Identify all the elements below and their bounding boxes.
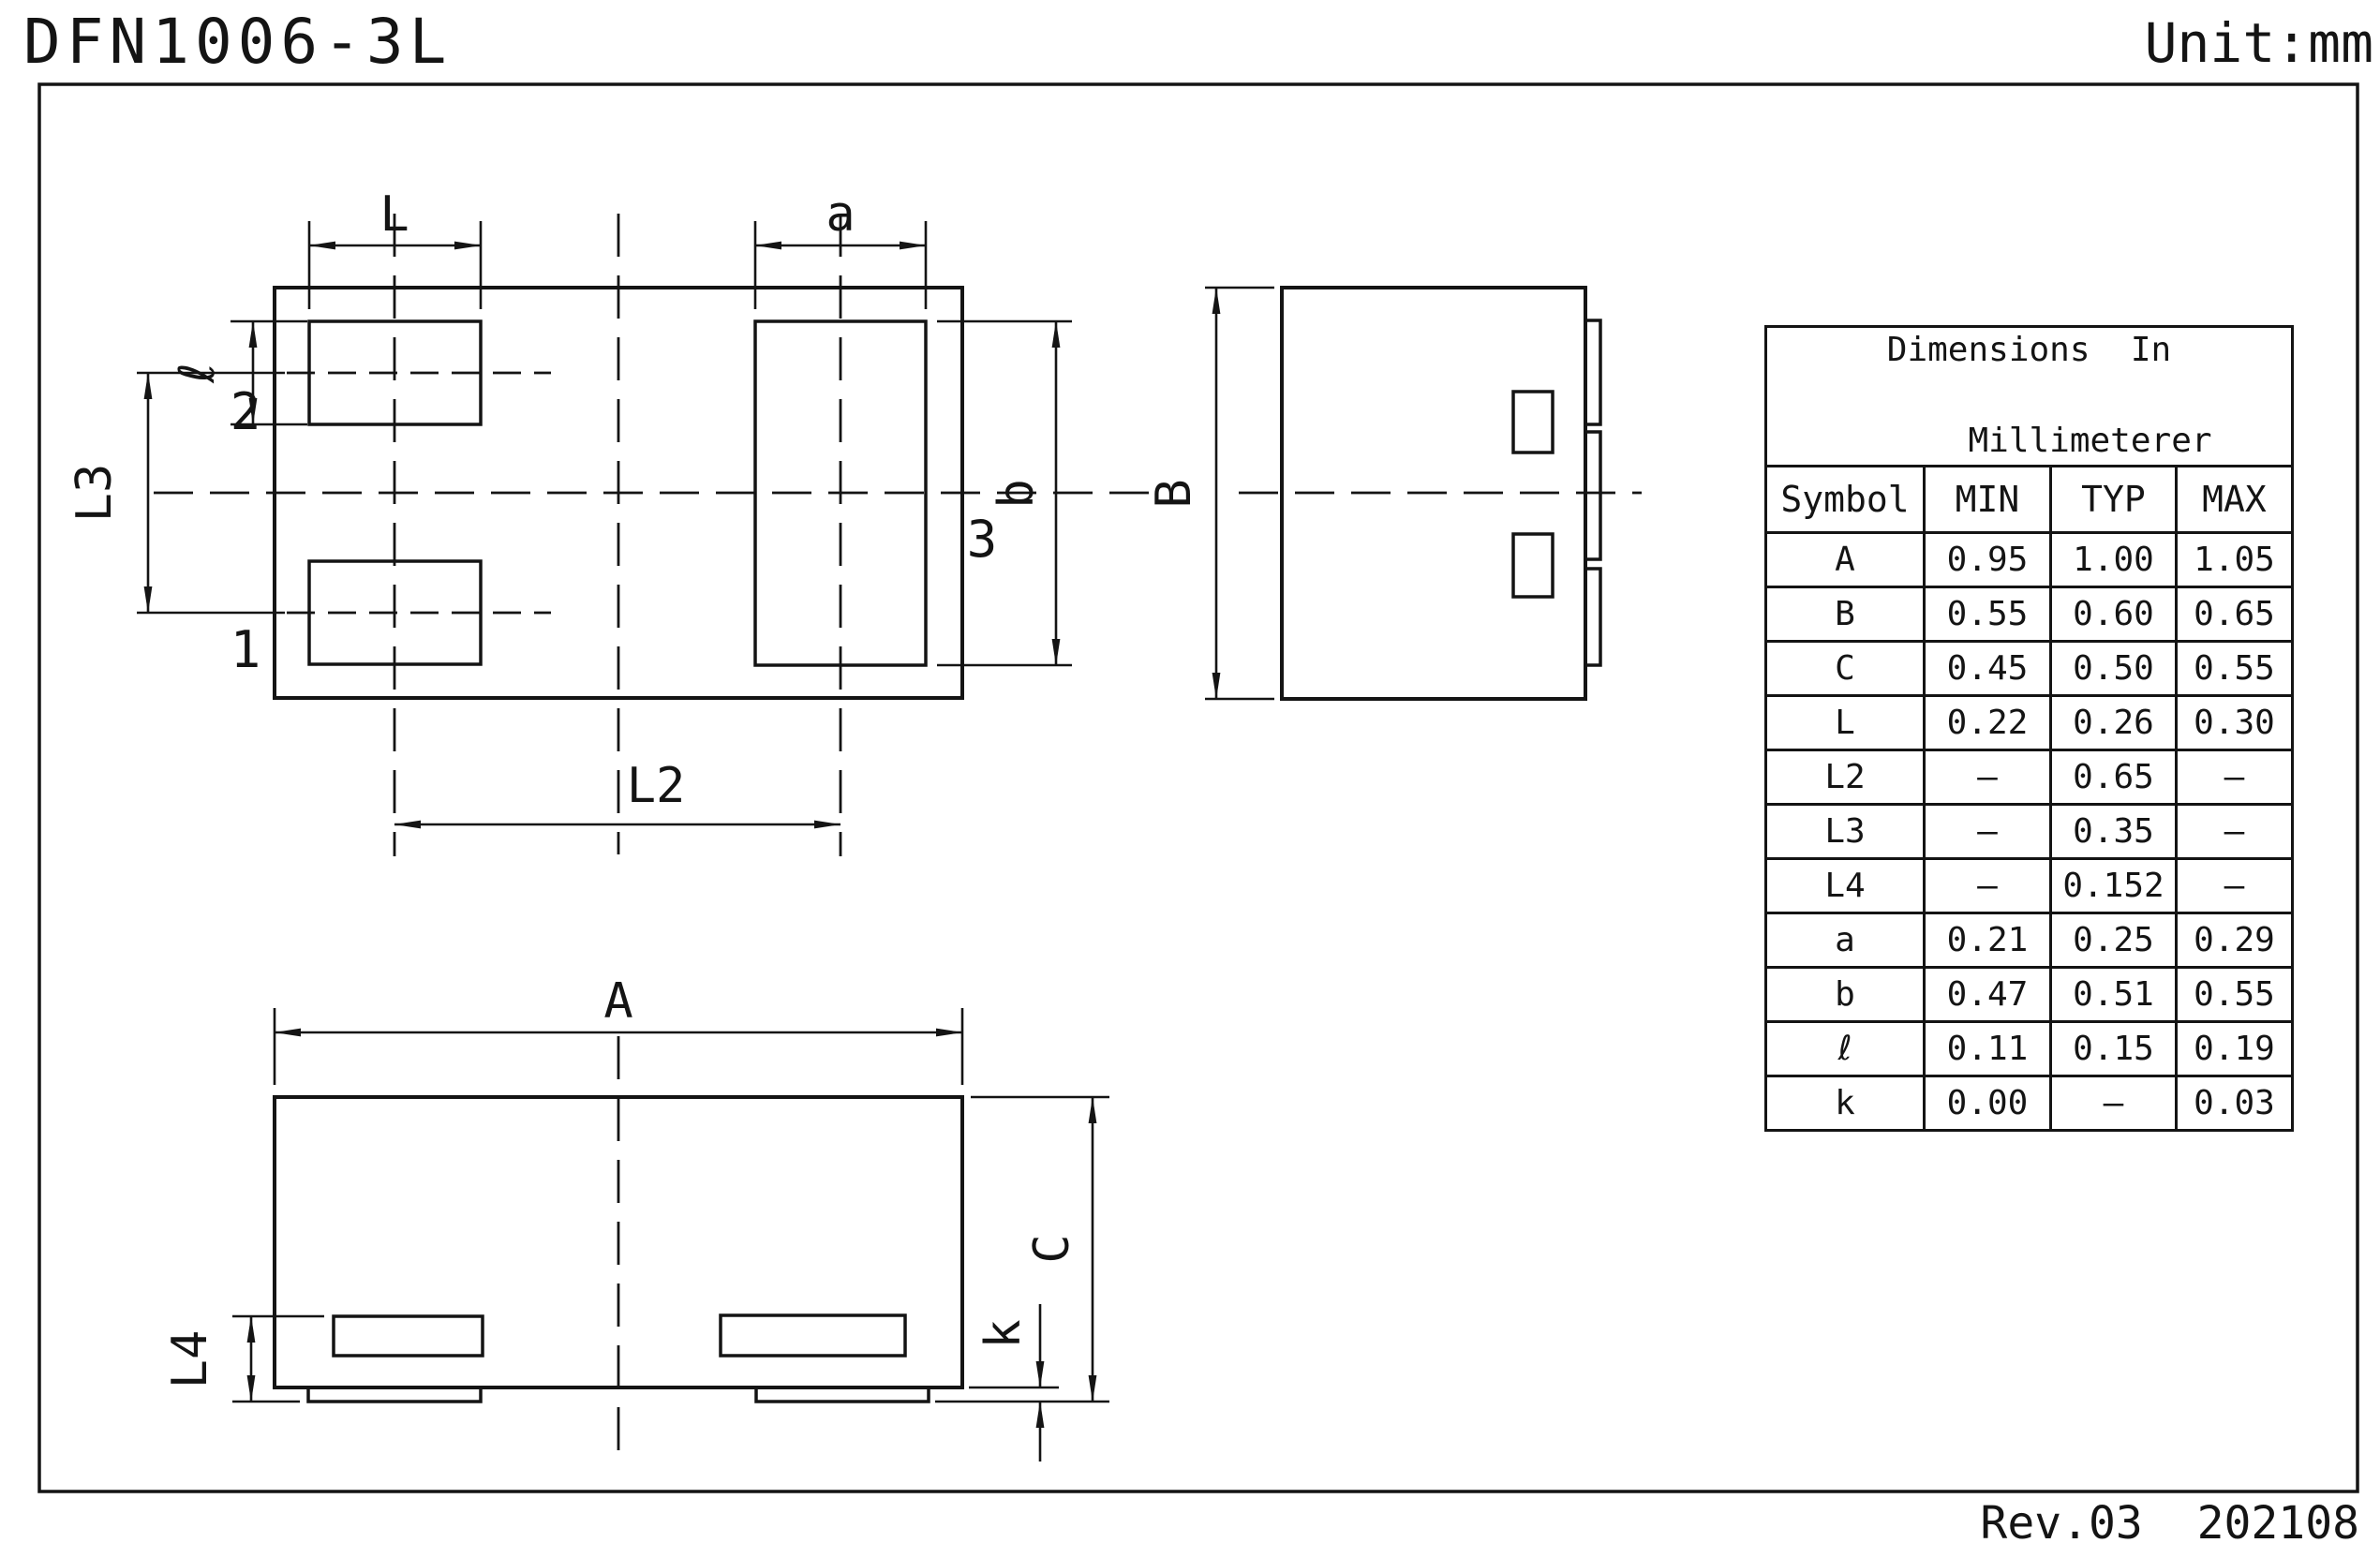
- cell-min: 0.00: [1925, 1076, 2051, 1130]
- cell-min: –: [1925, 804, 2051, 858]
- lead-tab-middle: [1585, 432, 1600, 559]
- cell-min: 0.22: [1925, 695, 2051, 749]
- cell-symbol: b: [1766, 967, 1925, 1021]
- table-row: a 0.21 0.25 0.29: [1766, 913, 2293, 967]
- cell-min: 0.55: [1925, 586, 2051, 641]
- dimensions-table: Dimensions In Millimeterer Symbol MIN TY…: [1764, 325, 2294, 1132]
- pin-2-label: 2: [231, 382, 261, 441]
- cell-max: 0.03: [2177, 1076, 2293, 1130]
- cell-max: 1.05: [2177, 532, 2293, 586]
- package-outline-drawing-page: { "page": { "title": "DFN1006-3L", "unit…: [0, 0, 2380, 1558]
- table-title-line2: Millimeterer: [1968, 422, 2211, 460]
- table-row: k 0.00 – 0.03: [1766, 1076, 2293, 1130]
- dim-label-A: A: [603, 973, 632, 1030]
- cell-symbol: L: [1766, 695, 1925, 749]
- col-header-typ: TYP: [2051, 466, 2177, 532]
- table-title-row: Dimensions In Millimeterer: [1766, 327, 2293, 467]
- dim-label-b: b: [989, 479, 1045, 508]
- dim-label-L4: L4: [162, 1330, 218, 1389]
- cell-max: 0.30: [2177, 695, 2293, 749]
- cell-max: 0.55: [2177, 641, 2293, 695]
- cell-min: 0.21: [1925, 913, 2051, 967]
- dim-k: k: [969, 1304, 1059, 1462]
- dim-label-L: L: [379, 186, 409, 243]
- lead-tab-bottom: [1585, 569, 1600, 665]
- dimensions-table-grid: Dimensions In Millimeterer Symbol MIN TY…: [1764, 325, 2294, 1132]
- cell-max: –: [2177, 804, 2293, 858]
- top-view: L a ℓ L3 2 1 b 3: [67, 186, 1162, 856]
- cell-symbol: L3: [1766, 804, 1925, 858]
- cell-max: –: [2177, 858, 2293, 913]
- dim-label-k: k: [975, 1319, 1032, 1348]
- bottom-pad-right: [721, 1315, 905, 1356]
- col-header-symbol: Symbol: [1766, 466, 1925, 532]
- side-view: B: [1146, 288, 1642, 699]
- cell-typ: 1.00: [2051, 532, 2177, 586]
- side-pad-lower: [1513, 534, 1553, 597]
- pin-3-label: 3: [967, 510, 998, 569]
- cell-max: 0.19: [2177, 1021, 2293, 1076]
- cell-typ: –: [2051, 1076, 2177, 1130]
- cell-typ: 0.25: [2051, 913, 2177, 967]
- table-row: A 0.95 1.00 1.05: [1766, 532, 2293, 586]
- dim-label-L3: L3: [67, 464, 123, 523]
- cell-symbol: L2: [1766, 749, 1925, 804]
- dim-label-C: C: [1024, 1234, 1080, 1263]
- terminal-foot-right: [756, 1387, 929, 1402]
- cell-min: –: [1925, 858, 2051, 913]
- cell-max: 0.55: [2177, 967, 2293, 1021]
- cell-min: 0.45: [1925, 641, 2051, 695]
- dim-label-L2: L2: [627, 758, 686, 814]
- bottom-view: A L4 C k: [162, 973, 1109, 1463]
- table-row: L4 – 0.152 –: [1766, 858, 2293, 913]
- table-row: B 0.55 0.60 0.65: [1766, 586, 2293, 641]
- cell-typ: 0.15: [2051, 1021, 2177, 1076]
- cell-max: 0.65: [2177, 586, 2293, 641]
- cell-min: 0.95: [1925, 532, 2051, 586]
- table-row: L2 – 0.65 –: [1766, 749, 2293, 804]
- table-header-row: Symbol MIN TYP MAX: [1766, 466, 2293, 532]
- cell-symbol: C: [1766, 641, 1925, 695]
- cell-typ: 0.35: [2051, 804, 2177, 858]
- cell-min: 0.11: [1925, 1021, 2051, 1076]
- cell-max: –: [2177, 749, 2293, 804]
- cell-typ: 0.60: [2051, 586, 2177, 641]
- side-pad-upper: [1513, 392, 1553, 453]
- cell-typ: 0.26: [2051, 695, 2177, 749]
- cell-symbol: a: [1766, 913, 1925, 967]
- table-row: C 0.45 0.50 0.55: [1766, 641, 2293, 695]
- cell-symbol: B: [1766, 586, 1925, 641]
- cell-min: 0.47: [1925, 967, 2051, 1021]
- table-row: L 0.22 0.26 0.30: [1766, 695, 2293, 749]
- cell-symbol: A: [1766, 532, 1925, 586]
- col-header-max: MAX: [2177, 466, 2293, 532]
- col-header-min: MIN: [1925, 466, 2051, 532]
- cell-typ: 0.51: [2051, 967, 2177, 1021]
- table-row: L3 – 0.35 –: [1766, 804, 2293, 858]
- cell-symbol: k: [1766, 1076, 1925, 1130]
- dim-label-a: a: [826, 186, 855, 243]
- cell-symbol: L4: [1766, 858, 1925, 913]
- cell-symbol: ℓ: [1766, 1021, 1925, 1076]
- lead-tab-top: [1585, 320, 1600, 424]
- cell-typ: 0.65: [2051, 749, 2177, 804]
- table-row: ℓ 0.11 0.15 0.19: [1766, 1021, 2293, 1076]
- table-row: b 0.47 0.51 0.55: [1766, 967, 2293, 1021]
- table-title-line1: Dimensions In: [1887, 331, 2171, 369]
- bottom-pad-left: [334, 1316, 483, 1356]
- dim-label-B: B: [1146, 479, 1202, 508]
- cell-max: 0.29: [2177, 913, 2293, 967]
- cell-typ: 0.50: [2051, 641, 2177, 695]
- cell-min: –: [1925, 749, 2051, 804]
- cell-typ: 0.152: [2051, 858, 2177, 913]
- pin-1-label: 1: [231, 620, 261, 679]
- terminal-foot-left: [308, 1387, 481, 1402]
- table-title: Dimensions In Millimeterer: [1766, 327, 2293, 467]
